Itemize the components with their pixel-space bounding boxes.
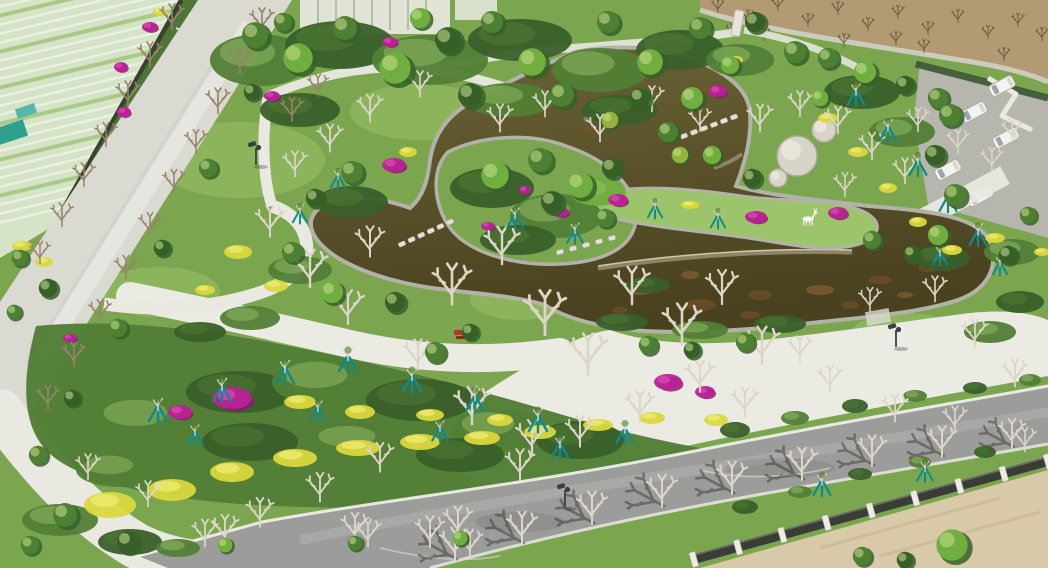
shrub-highlight [284,362,348,388]
lily-pad [841,301,859,309]
canopy-highlight [865,233,874,242]
canopy-highlight [463,325,471,333]
staked-tree-canopy [408,366,415,373]
canopy-highlight [201,161,210,170]
staked-tree-canopy [557,435,564,442]
shrub-mass [156,539,200,557]
flower-highlight [385,159,396,166]
canopy-highlight [660,124,670,134]
canopy-highlight [382,55,397,70]
shrub-mass [842,399,868,413]
staked-tree-canopy [915,152,922,159]
canopy-highlight [691,19,702,30]
yellow-hedge-highlight [198,286,209,291]
flower-highlight [65,335,71,339]
canopy-highlight [349,537,356,544]
shrub-mass [996,291,1044,313]
canopy-highlight [905,247,913,255]
canopy-highlight [745,171,754,180]
lily-pad [612,307,628,313]
flower-highlight [116,63,122,68]
canopy-highlight [685,343,693,351]
flower-highlight [521,187,526,191]
staked-tree-canopy [652,198,658,204]
yellow-hedge [35,257,53,267]
lamp-head [896,327,901,332]
lily-pad [740,311,760,319]
flower-highlight [384,38,391,43]
yellow-hedge-highlight [988,234,999,239]
yellow-hedge [273,449,317,467]
flower-highlight [611,195,620,201]
shrub-highlight [323,188,363,206]
shrub-mass [672,321,728,339]
canopy-highlight [308,191,317,200]
yellow-hedge-highlight [851,148,862,153]
shrub-mass [963,382,987,394]
canopy-highlight [55,505,67,517]
canopy-highlight [484,164,498,178]
yellow-hedge [84,492,136,518]
staked-tree-canopy [572,221,578,227]
yellow-hedge [639,412,665,424]
yellow-hedge-highlight [642,413,656,419]
canopy-highlight [8,306,15,313]
yellow-hedge [985,233,1005,243]
yellow-hedge [284,395,316,409]
boulder-highlight [771,171,780,180]
lamp-head [565,487,570,492]
canopy-highlight [641,338,650,347]
flower-highlight [171,406,182,413]
lily-pad [681,271,699,279]
canopy-highlight [521,51,535,65]
flower-highlight [748,212,758,218]
yellow-hedge-highlight [490,415,504,421]
yellow-hedge-highlight [349,406,366,413]
shrub-mass [754,315,806,333]
canopy-highlight [939,532,954,547]
shrub-mass [964,321,1016,343]
lily-pad [868,276,892,284]
flower-highlight [831,208,840,214]
yellow-hedge [879,183,897,193]
yellow-hedge [345,405,375,419]
shrub-mass [788,486,812,498]
canopy-highlight [632,90,642,100]
canopy-highlight [543,193,554,204]
canopy-highlight [245,85,253,93]
canopy-highlight [930,227,940,237]
canopy-highlight [603,113,611,121]
yellow-hedge-highlight [1036,249,1045,253]
shrub-mass [720,422,750,438]
yellow-hedge [210,462,254,482]
yellow-hedge-highlight [91,494,120,507]
canopy-highlight [31,448,40,457]
canopy-highlight [604,160,614,170]
yellow-hedge-highlight [279,450,303,459]
canopy-highlight [1001,248,1010,257]
staked-tree-canopy [471,386,478,393]
park-scene-svg [0,0,1048,568]
flower-highlight [144,23,151,28]
canopy-highlight [284,244,294,254]
shrub-highlight [845,400,859,408]
yellow-hedge [464,431,500,445]
flower-highlight [698,387,707,393]
shrub-highlight [876,119,912,136]
staked-tree-canopy [622,420,629,427]
canopy-highlight [820,50,830,60]
yellow-hedge [264,280,288,292]
canopy-highlight [723,58,732,67]
shrub-mass [596,313,648,331]
shrub-mass [732,500,758,514]
yellow-hedge-highlight [288,396,306,403]
yellow-hedge-highlight [37,258,47,263]
shrub-highlight [976,447,988,454]
canopy-highlight [343,163,354,174]
flower-highlight [119,108,125,113]
canopy-highlight [13,251,21,259]
yellow-hedge [399,147,417,157]
flower-highlight [483,223,489,227]
shrub-mass [220,306,280,330]
shrub-highlight [905,391,918,398]
staked-tree-canopy [853,82,860,89]
yellow-hedge-highlight [342,441,366,449]
yellow-hedge-highlight [267,281,280,287]
lily-pad [748,290,772,300]
yellow-hedge-highlight [945,246,956,251]
canopy-highlight [813,91,821,99]
lamp-shadow [254,165,268,169]
canopy-highlight [41,281,50,290]
canopy-highlight [898,78,907,87]
shrub-mass [1019,374,1041,386]
canopy-highlight [438,30,451,43]
canopy-highlight [323,283,334,294]
canopy-highlight [219,539,226,546]
yellow-hedge [848,147,868,157]
shrub-highlight [735,501,749,509]
shrub-highlight [1001,293,1027,305]
shrub-highlight [790,487,803,494]
canopy-highlight [155,241,163,249]
flower-highlight [711,86,719,92]
lamp-head [256,145,261,150]
canopy-highlight [946,186,957,197]
canopy-highlight [747,14,757,24]
yellow-hedge-highlight [401,148,411,153]
canopy-highlight [705,148,714,157]
shrub-highlight [562,51,615,75]
canopy-highlight [427,344,437,354]
staked-tree-canopy [922,459,928,465]
yellow-hedge-highlight [469,432,489,439]
lily-pad [806,285,834,295]
canopy-highlight [460,85,472,97]
lamp-shadow [894,347,908,351]
staked-tree-canopy [885,118,892,125]
shrub-highlight [1021,375,1033,382]
shrub-mass [848,468,872,480]
yellow-hedge [224,245,252,259]
shrub-mass [974,446,996,458]
yellow-hedge-highlight [405,435,427,443]
staked-tree-canopy [975,222,982,229]
shrub-highlight [759,316,788,326]
yellow-hedge [487,414,513,426]
yellow-hedge-highlight [15,242,26,247]
canopy-highlight [454,532,461,539]
yellow-hedge [195,285,215,295]
canopy-highlight [111,321,120,330]
canopy-highlight [412,10,422,20]
shrub-highlight [590,97,632,114]
staked-tree-canopy [715,208,721,214]
boulder-highlight [781,140,801,160]
staked-tree-canopy [315,399,321,405]
yellow-hedge [681,201,699,209]
shrub-highlight [179,324,208,335]
canopy-highlight [552,85,564,97]
canopy-highlight [483,13,494,24]
staked-tree-canopy [335,168,341,174]
canopy-highlight [898,553,906,561]
aerial-park-photo [0,0,1048,568]
canopy-highlight [245,25,258,38]
staked-tree-canopy [512,206,518,212]
shrub-highlight [160,540,184,550]
shrub-highlight [212,426,265,447]
yellow-hedge [336,440,380,456]
canopy-highlight [855,549,864,558]
yellow-hedge-highlight [707,415,720,421]
yellow-hedge-highlight [881,184,891,189]
staked-tree-canopy [218,376,225,383]
canopy-highlight [335,18,347,30]
lamp-shadow [563,507,577,511]
canopy-highlight [640,52,653,65]
canopy-highlight [927,147,937,157]
staked-tree-canopy [344,346,351,353]
yellow-hedge-highlight [420,410,435,416]
yellow-hedge [704,414,728,426]
yellow-hedge-highlight [228,246,243,253]
shrub-highlight [226,308,259,321]
canopy-highlight [786,43,797,54]
canopy-highlight [276,15,285,24]
canopy-highlight [65,391,73,399]
staked-tree-canopy [437,419,443,425]
yellow-hedge [12,241,32,251]
canopy-highlight [941,106,952,117]
shrub-highlight [850,469,863,476]
canopy-highlight [119,533,130,544]
flower-highlight [658,376,671,384]
staked-tree-canopy [154,396,161,403]
lily-pad [684,299,716,311]
yellow-hedge-highlight [683,202,693,206]
canopy-highlight [856,63,867,74]
staked-tree-canopy [297,203,303,209]
yellow-hedge-highlight [911,218,921,223]
deer-head [814,211,817,214]
canopy-highlight [930,90,940,100]
shrub-mass [781,411,809,425]
shrub-highlight [723,423,740,432]
flower-highlight [266,92,273,97]
shrub-highlight [601,314,630,324]
canopy-highlight [683,89,694,100]
staked-tree-canopy [281,358,288,365]
canopy-highlight [23,538,32,547]
canopy-highlight [599,13,610,24]
yellow-hedge-highlight [216,464,240,474]
canopy-highlight [738,335,747,344]
canopy-highlight [673,148,681,156]
canopy-highlight [598,211,607,220]
staked-tree-canopy [534,406,541,413]
canopy-highlight [530,150,542,162]
shrub-highlight [965,383,978,390]
yellow-hedge [909,217,927,227]
canopy-highlight [1021,208,1029,216]
staked-tree-canopy [192,423,198,429]
staked-tree-canopy [819,472,826,479]
yellow-hedge [416,409,444,421]
canopy-highlight [570,175,583,188]
shrub-mass [174,322,226,342]
canopy-highlight [286,46,300,60]
lily-pad [897,292,913,298]
shrub-highlight [784,412,799,420]
canopy-highlight [387,294,397,304]
